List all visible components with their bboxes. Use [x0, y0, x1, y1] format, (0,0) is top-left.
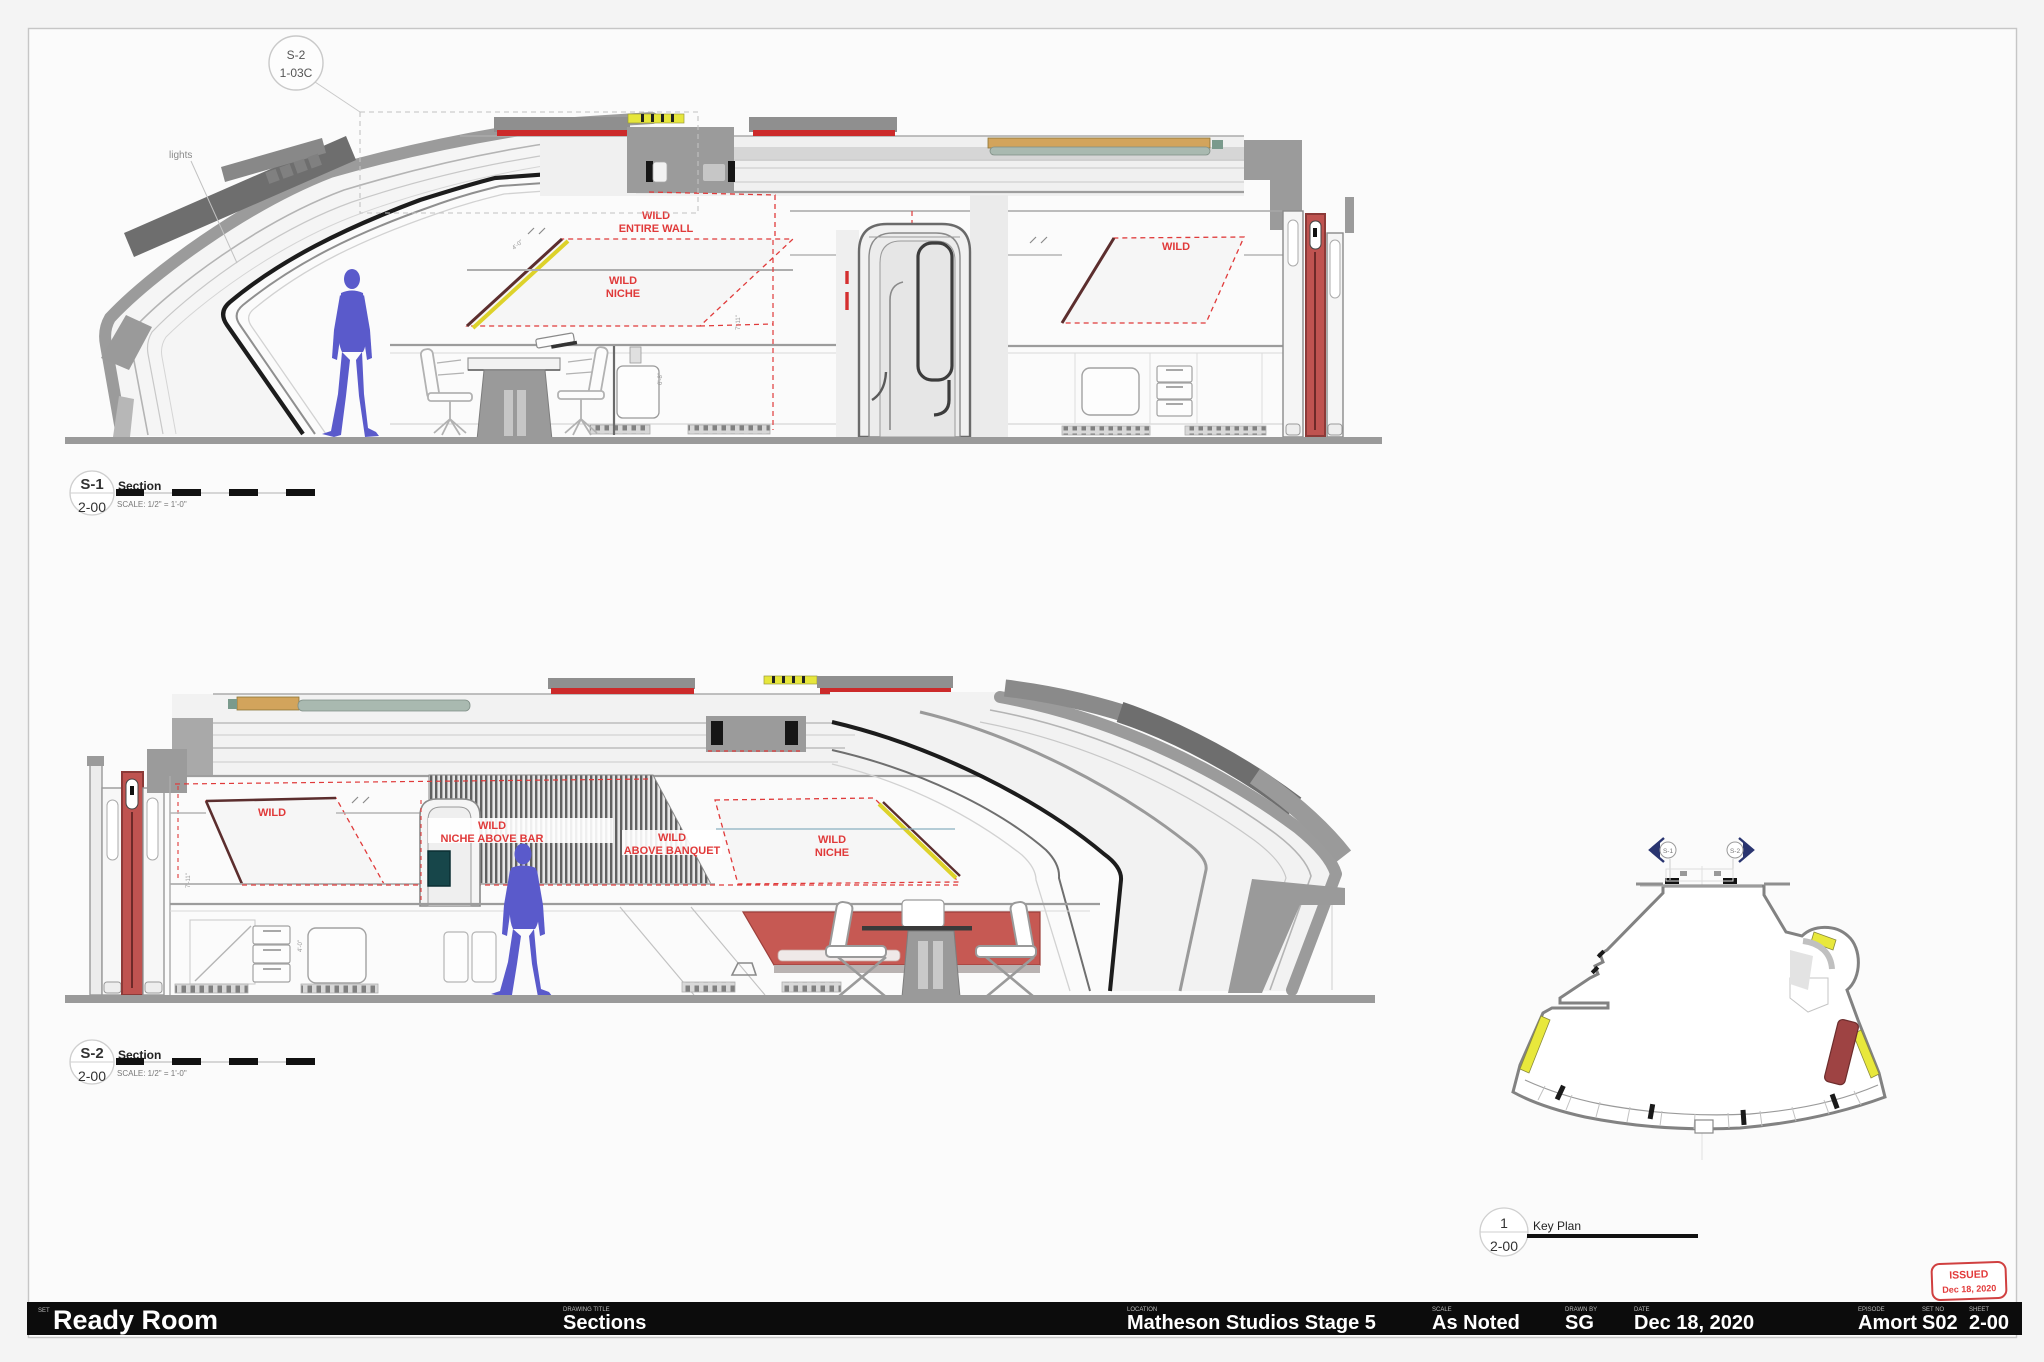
svg-text:WILD: WILD — [658, 832, 686, 844]
svg-text:WILD: WILD — [609, 275, 637, 287]
svg-text:S02: S02 — [1922, 1312, 1958, 1334]
svg-text:NICHE: NICHE — [606, 288, 640, 300]
svg-text:ISSUED: ISSUED — [1949, 1268, 1989, 1281]
svg-text:SCALE: 1/2" = 1'-0": SCALE: 1/2" = 1'-0" — [117, 500, 187, 509]
svg-text:As Noted: As Noted — [1432, 1312, 1520, 1334]
svg-text:Ready Room: Ready Room — [53, 1305, 218, 1335]
svg-text:Dec 18, 2020: Dec 18, 2020 — [1634, 1312, 1754, 1334]
svg-text:2-00: 2-00 — [1490, 1238, 1518, 1254]
svg-text:WILD: WILD — [478, 820, 506, 832]
svg-text:lights: lights — [169, 150, 192, 161]
svg-text:WILD: WILD — [818, 834, 846, 846]
svg-text:NICHE ABOVE BAR: NICHE ABOVE BAR — [441, 833, 544, 845]
svg-text:7'-11": 7'-11" — [736, 315, 742, 330]
svg-text:SET: SET — [38, 1308, 50, 1314]
svg-text:6'-8": 6'-8" — [658, 373, 664, 385]
svg-text:1-03C: 1-03C — [280, 66, 313, 80]
svg-text:Dec 18, 2020: Dec 18, 2020 — [1942, 1283, 1996, 1295]
svg-text:SG: SG — [1565, 1312, 1594, 1334]
svg-text:2-00: 2-00 — [1969, 1312, 2009, 1334]
svg-text:WILD: WILD — [1162, 241, 1190, 253]
svg-text:2-00: 2-00 — [78, 1068, 106, 1084]
svg-text:1: 1 — [1500, 1215, 1508, 1231]
svg-text:WILD: WILD — [258, 807, 286, 819]
svg-text:Matheson Studios Stage 5: Matheson Studios Stage 5 — [1127, 1312, 1376, 1334]
svg-text:ABOVE BANQUET: ABOVE BANQUET — [624, 845, 721, 857]
svg-text:ENTIRE WALL: ENTIRE WALL — [619, 223, 694, 235]
svg-text:SCALE: 1/2" = 1'-0": SCALE: 1/2" = 1'-0" — [117, 1069, 187, 1078]
svg-text:S-2: S-2 — [80, 1045, 103, 1062]
svg-text:7'-11": 7'-11" — [186, 873, 192, 888]
svg-text:S-2: S-2 — [1730, 848, 1741, 855]
svg-text:NICHE: NICHE — [815, 847, 849, 859]
svg-text:2-00: 2-00 — [78, 499, 106, 515]
svg-text:S-1: S-1 — [1663, 848, 1674, 855]
svg-text:WILD: WILD — [642, 210, 670, 222]
svg-text:4'-0": 4'-0" — [298, 940, 304, 952]
svg-text:Key Plan: Key Plan — [1533, 1219, 1581, 1233]
svg-text:S-2: S-2 — [287, 48, 306, 62]
svg-text:Amort: Amort — [1858, 1312, 1917, 1334]
svg-text:S-1: S-1 — [80, 476, 103, 493]
svg-text:Sections: Sections — [563, 1312, 646, 1334]
